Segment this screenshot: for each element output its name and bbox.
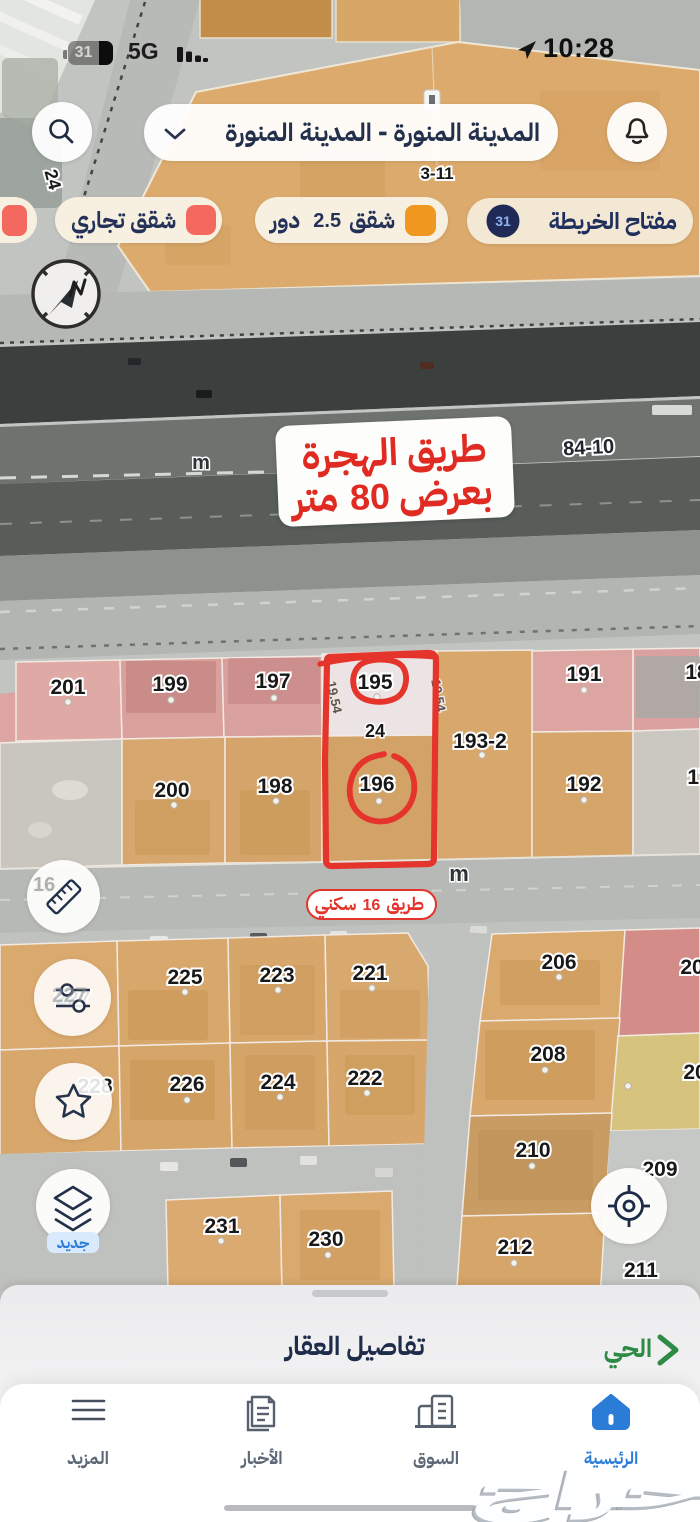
svg-text:221: 221 — [352, 962, 387, 985]
svg-text:212: 212 — [497, 1236, 532, 1259]
svg-text:211: 211 — [624, 1259, 658, 1282]
svg-text:201: 201 — [50, 676, 85, 699]
svg-text:31: 31 — [495, 213, 511, 229]
svg-text:192: 192 — [566, 773, 601, 796]
svg-text:16: 16 — [363, 897, 381, 914]
svg-text:20: 20 — [683, 1061, 700, 1084]
svg-text:191: 191 — [566, 663, 601, 686]
svg-text:199: 199 — [152, 673, 187, 696]
svg-text:208: 208 — [530, 1043, 565, 1066]
svg-text:193-2: 193-2 — [453, 730, 507, 753]
svg-text:230: 230 — [308, 1228, 343, 1251]
svg-text:200: 200 — [154, 779, 189, 802]
svg-text:225: 225 — [167, 966, 202, 989]
svg-text:226: 226 — [169, 1073, 204, 1096]
svg-text:80: 80 — [349, 475, 391, 518]
svg-text:3-11: 3-11 — [420, 164, 453, 183]
svg-text:20: 20 — [680, 956, 700, 979]
svg-text:195: 195 — [357, 671, 392, 694]
svg-text:198: 198 — [257, 775, 292, 798]
svg-text:222: 222 — [347, 1067, 382, 1090]
svg-text:84-10: 84-10 — [563, 436, 615, 461]
svg-text:18: 18 — [685, 661, 700, 684]
svg-text:223: 223 — [259, 964, 294, 987]
svg-text:197: 197 — [255, 670, 290, 693]
svg-text:17: 17 — [687, 766, 700, 789]
svg-text:210: 210 — [515, 1139, 550, 1162]
svg-text:206: 206 — [541, 951, 576, 974]
svg-text:224: 224 — [260, 1071, 295, 1094]
svg-text:24: 24 — [365, 721, 385, 741]
svg-text:m: m — [192, 452, 210, 474]
svg-text:2.5: 2.5 — [313, 210, 341, 232]
svg-text:196: 196 — [359, 773, 394, 796]
svg-text:m: m — [449, 861, 469, 886]
svg-text:231: 231 — [204, 1215, 239, 1238]
